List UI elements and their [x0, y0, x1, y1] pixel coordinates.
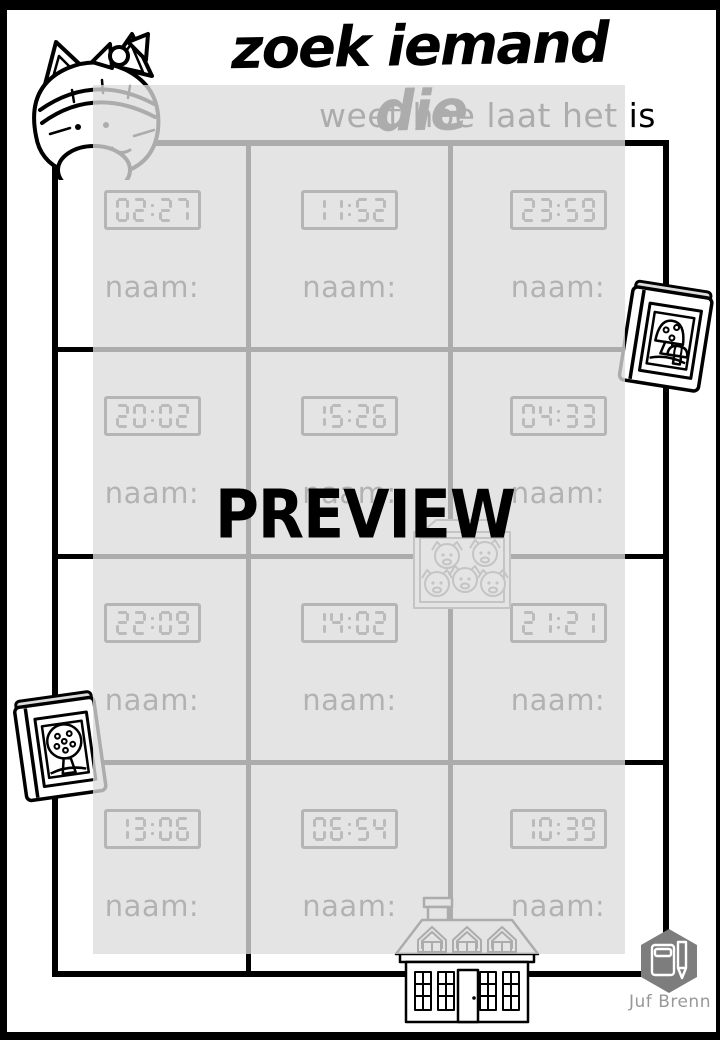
clock-display: [104, 809, 201, 849]
name-label: naam:: [58, 270, 246, 304]
clock-colon-icon: [347, 817, 352, 841]
page-frame-right: [716, 0, 720, 1040]
seven-segment-digit: [116, 198, 129, 222]
seven-segment-digit: [133, 198, 146, 222]
mushroom-book-icon: [612, 274, 720, 401]
name-label: naam:: [58, 889, 246, 923]
worksheet-grid: naam:naam:naam:naam:naam:naam:naam:naam:…: [52, 140, 669, 977]
clock-display: [301, 190, 398, 230]
seven-segment-digit: [159, 611, 172, 635]
seven-segment-digit: [565, 817, 578, 841]
clock-display: [301, 809, 398, 849]
grid-cell: naam:: [251, 146, 453, 352]
brand-name: Juf Brenn: [622, 992, 718, 1012]
seven-segment-digit: [356, 404, 369, 428]
clock-colon-icon: [150, 611, 155, 635]
seven-segment-digit: [356, 611, 369, 635]
seven-segment-digit: [330, 611, 343, 635]
seven-segment-digit: [176, 198, 189, 222]
clock-display: [104, 396, 201, 436]
page-frame-top: [0, 0, 720, 10]
clock-display: [510, 603, 607, 643]
cat-icon: [16, 30, 168, 180]
seven-segment-digit: [330, 404, 343, 428]
preview-watermark: PREVIEW: [205, 476, 525, 554]
clock-display: [510, 190, 607, 230]
seven-segment-digit: [522, 404, 535, 428]
clock-colon-icon: [150, 817, 155, 841]
seven-segment-digit: [313, 198, 326, 222]
clock-colon-icon: [150, 198, 155, 222]
seven-segment-digit: [133, 611, 146, 635]
seven-segment-digit: [133, 404, 146, 428]
seven-segment-digit: [133, 817, 146, 841]
clock-display: [301, 603, 398, 643]
tree-book-icon: [3, 684, 118, 811]
seven-segment-digit: [313, 404, 326, 428]
seven-segment-digit: [116, 817, 129, 841]
seven-segment-digit: [356, 198, 369, 222]
seven-segment-digit: [116, 611, 129, 635]
clock-display: [510, 396, 607, 436]
clock-display: [301, 396, 398, 436]
house-icon: [392, 896, 542, 1028]
page-frame-left: [0, 0, 7, 1040]
seven-segment-digit: [176, 817, 189, 841]
seven-segment-digit: [159, 817, 172, 841]
seven-segment-digit: [582, 611, 595, 635]
seven-segment-digit: [373, 198, 386, 222]
seven-segment-digit: [522, 611, 535, 635]
seven-segment-digit: [565, 611, 578, 635]
book-pencil-logo-icon: [640, 928, 698, 994]
seven-segment-digit: [565, 404, 578, 428]
seven-segment-digit: [582, 404, 595, 428]
seven-segment-digit: [330, 198, 343, 222]
seven-segment-digit: [539, 611, 552, 635]
name-label: naam:: [251, 683, 448, 717]
seven-segment-digit: [330, 817, 343, 841]
seven-segment-digit: [373, 404, 386, 428]
clock-colon-icon: [347, 611, 352, 635]
seven-segment-digit: [565, 198, 578, 222]
seven-segment-digit: [373, 817, 386, 841]
seven-segment-digit: [582, 817, 595, 841]
seven-segment-digit: [539, 198, 552, 222]
clock-display: [510, 809, 607, 849]
clock-colon-icon: [347, 198, 352, 222]
clock-colon-icon: [556, 404, 561, 428]
seven-segment-digit: [159, 198, 172, 222]
name-label: naam:: [251, 270, 448, 304]
seven-segment-digit: [356, 817, 369, 841]
seven-segment-digit: [116, 404, 129, 428]
seven-segment-digit: [522, 198, 535, 222]
seven-segment-digit: [373, 611, 386, 635]
clock-display: [104, 190, 201, 230]
clock-colon-icon: [556, 817, 561, 841]
seven-segment-digit: [582, 198, 595, 222]
seven-segment-digit: [176, 611, 189, 635]
seven-segment-digit: [539, 404, 552, 428]
seven-segment-digit: [176, 404, 189, 428]
name-label: naam:: [453, 683, 663, 717]
seven-segment-digit: [539, 817, 552, 841]
clock-colon-icon: [150, 404, 155, 428]
clock-colon-icon: [556, 198, 561, 222]
page-subtitle: weet hoe laat het is: [319, 96, 656, 135]
seven-segment-digit: [522, 817, 535, 841]
clock-colon-icon: [556, 611, 561, 635]
clock-colon-icon: [347, 404, 352, 428]
clock-display: [104, 603, 201, 643]
seven-segment-digit: [313, 611, 326, 635]
seven-segment-digit: [159, 404, 172, 428]
page-frame-bottom: [0, 1032, 720, 1040]
seven-segment-digit: [313, 817, 326, 841]
